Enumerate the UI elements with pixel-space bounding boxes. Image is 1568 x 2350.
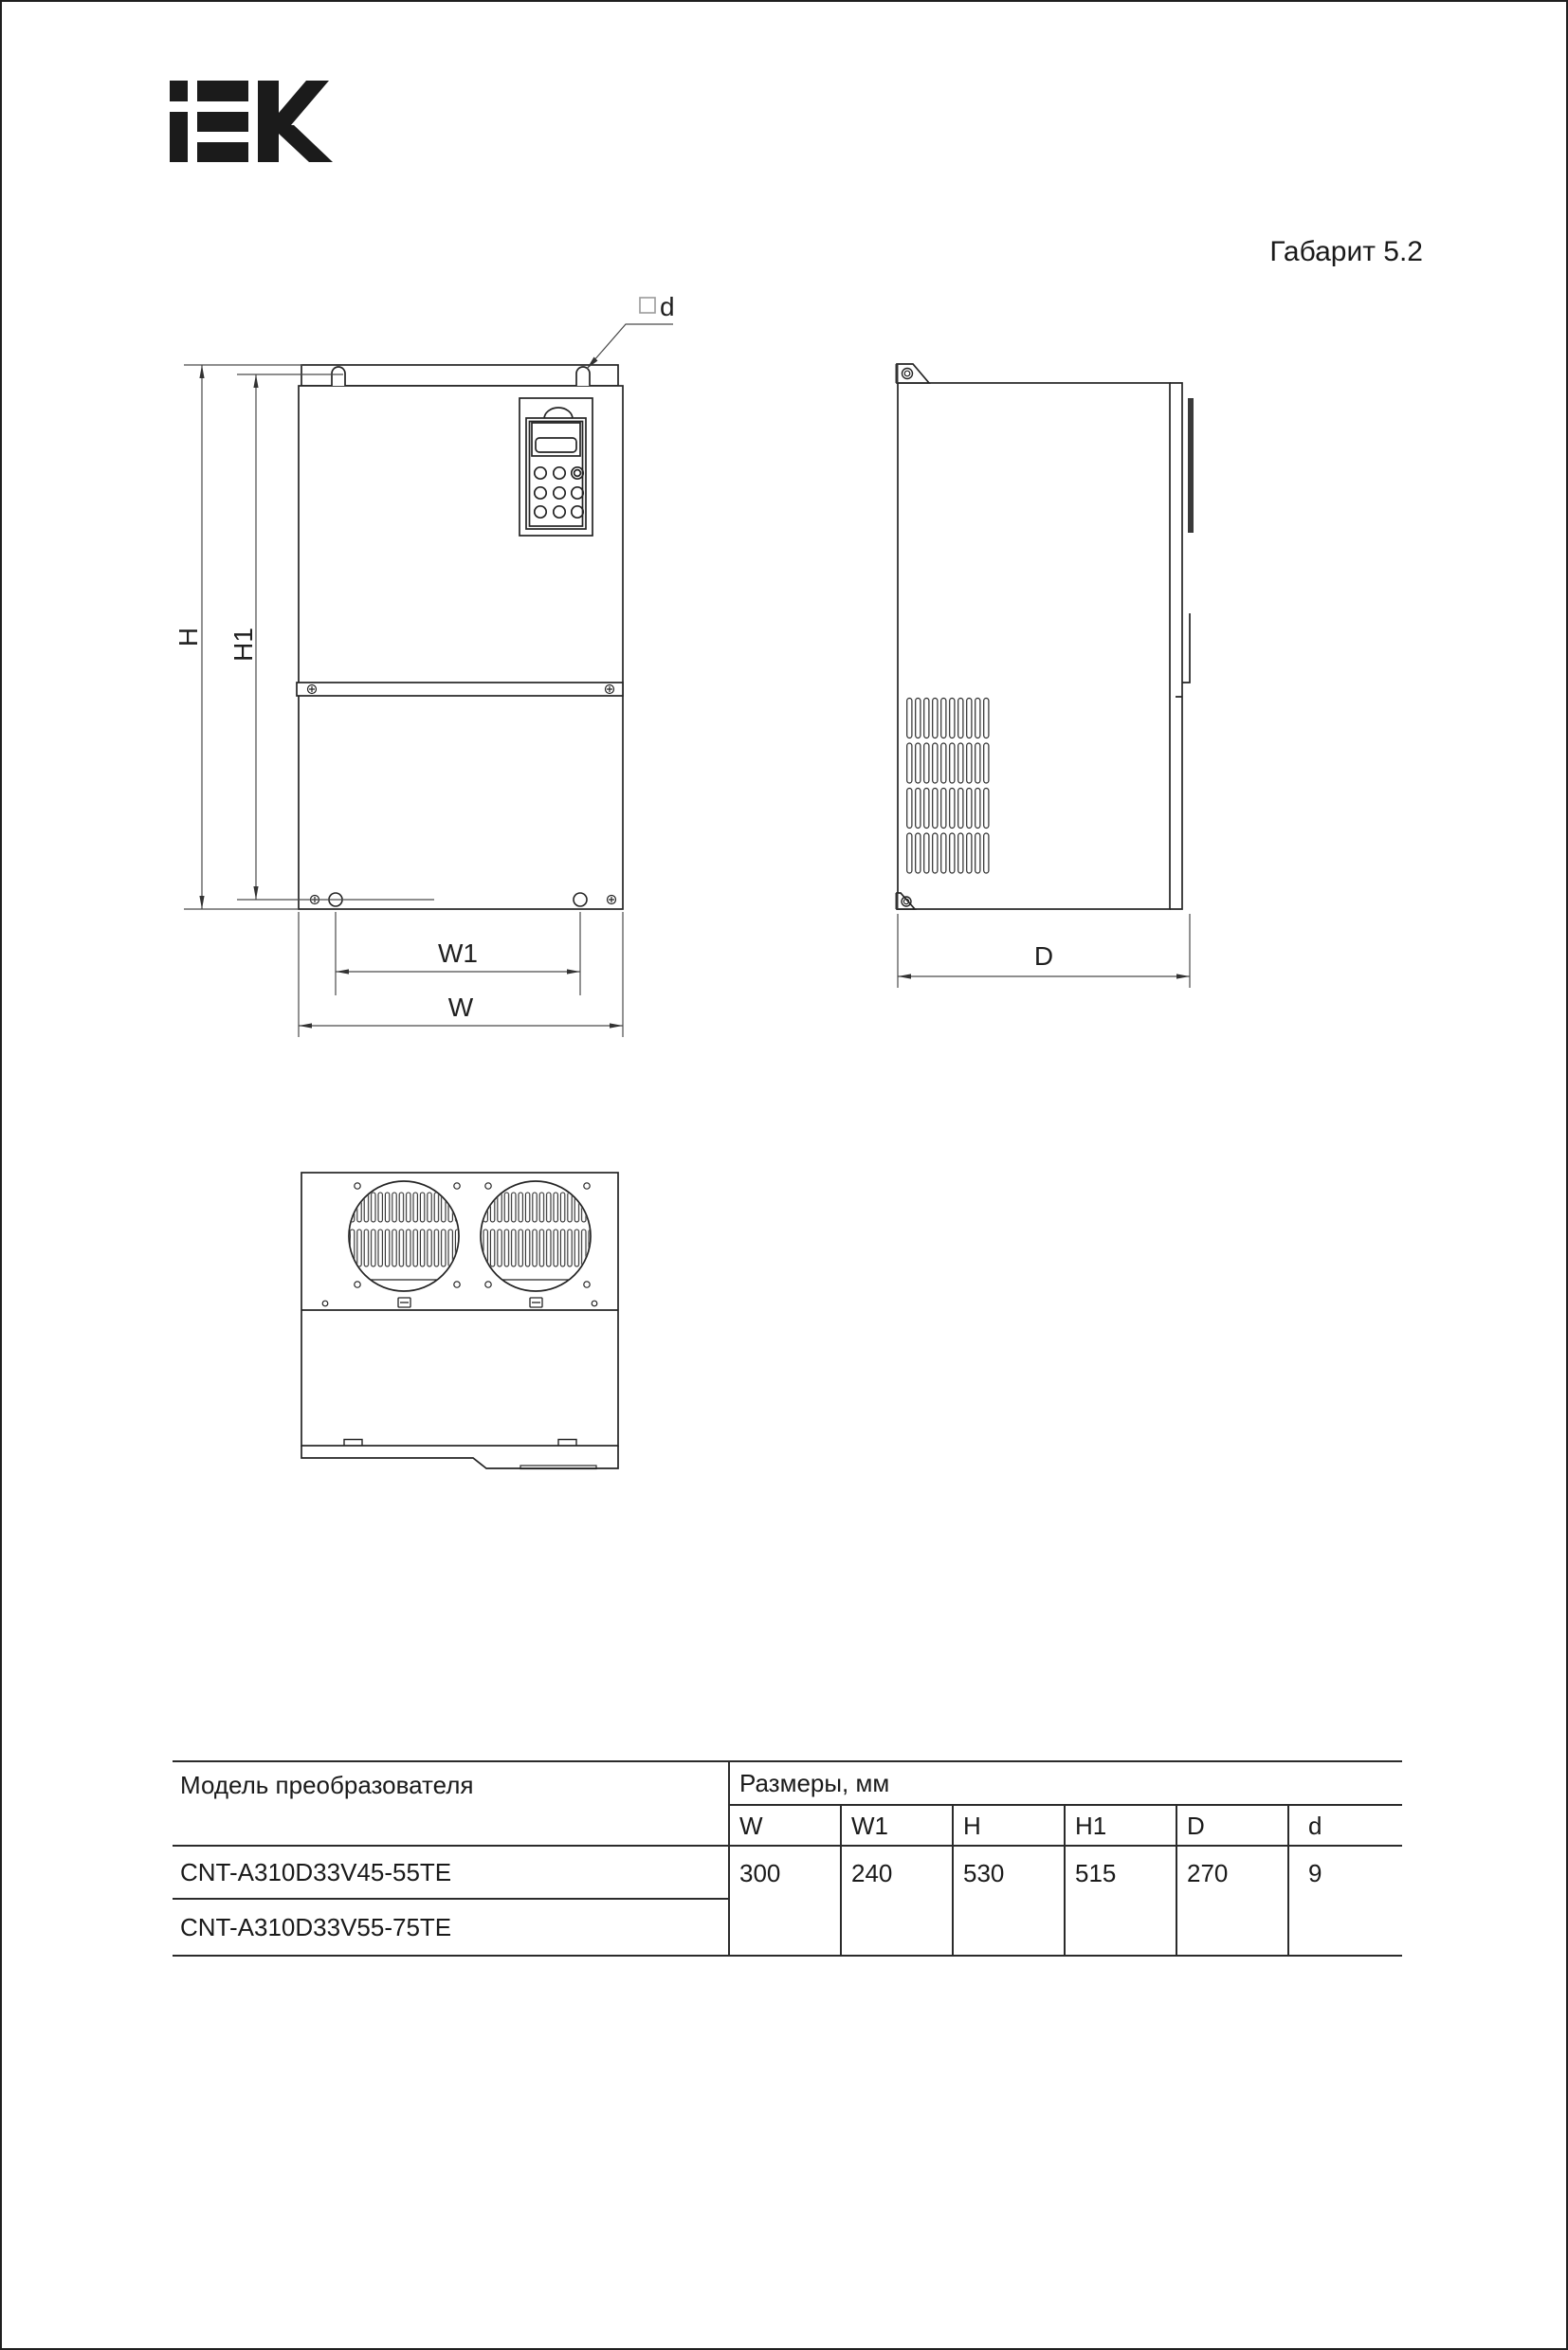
dimension-drawing: H H1 W1 W D d bbox=[2, 2, 1568, 1613]
table-value-h1: 515 bbox=[1066, 1847, 1177, 1955]
table-value-h: 530 bbox=[954, 1847, 1066, 1955]
flange-plate bbox=[520, 1466, 596, 1469]
dim-label-h: H bbox=[173, 628, 203, 647]
table-row-model-1: CNT-A310D33V45-55TE bbox=[173, 1847, 730, 1900]
table-header-w1: W1 bbox=[842, 1806, 954, 1847]
dimensions-table: Модель преобразователя Размеры, мм W W1 … bbox=[173, 1760, 1402, 1957]
table-value-w1: 240 bbox=[842, 1847, 954, 1955]
datasheet-page: Габарит 5.2 bbox=[0, 0, 1568, 2350]
table-header-w: W bbox=[730, 1806, 842, 1847]
dim-label-w: W bbox=[448, 993, 474, 1022]
keypad bbox=[520, 398, 593, 536]
bottom-view bbox=[301, 1173, 618, 1469]
table-header-dims: Размеры, мм bbox=[730, 1762, 1402, 1806]
table-header-h: H bbox=[954, 1806, 1066, 1847]
dim-label-w1: W1 bbox=[438, 938, 478, 968]
vent-grille bbox=[905, 697, 991, 877]
table-header-d-hole: d bbox=[1289, 1806, 1402, 1847]
side-view bbox=[896, 364, 1194, 909]
dim-label-d-depth: D bbox=[1034, 941, 1053, 971]
front-view bbox=[297, 365, 623, 909]
table-header-d: D bbox=[1177, 1806, 1289, 1847]
square-symbol-icon bbox=[640, 298, 655, 313]
dim-label-h1: H1 bbox=[228, 628, 258, 662]
table-header-model: Модель преобразователя bbox=[173, 1762, 730, 1847]
back-mounting-plate bbox=[1188, 398, 1194, 533]
table-value-w: 300 bbox=[730, 1847, 842, 1955]
table-value-d-hole: 9 bbox=[1289, 1847, 1402, 1955]
table-header-h1: H1 bbox=[1066, 1806, 1177, 1847]
dim-label-hole-d: d bbox=[660, 292, 675, 321]
table-row-model-2: CNT-A310D33V55-75TE bbox=[173, 1900, 730, 1955]
table-value-d: 270 bbox=[1177, 1847, 1289, 1955]
